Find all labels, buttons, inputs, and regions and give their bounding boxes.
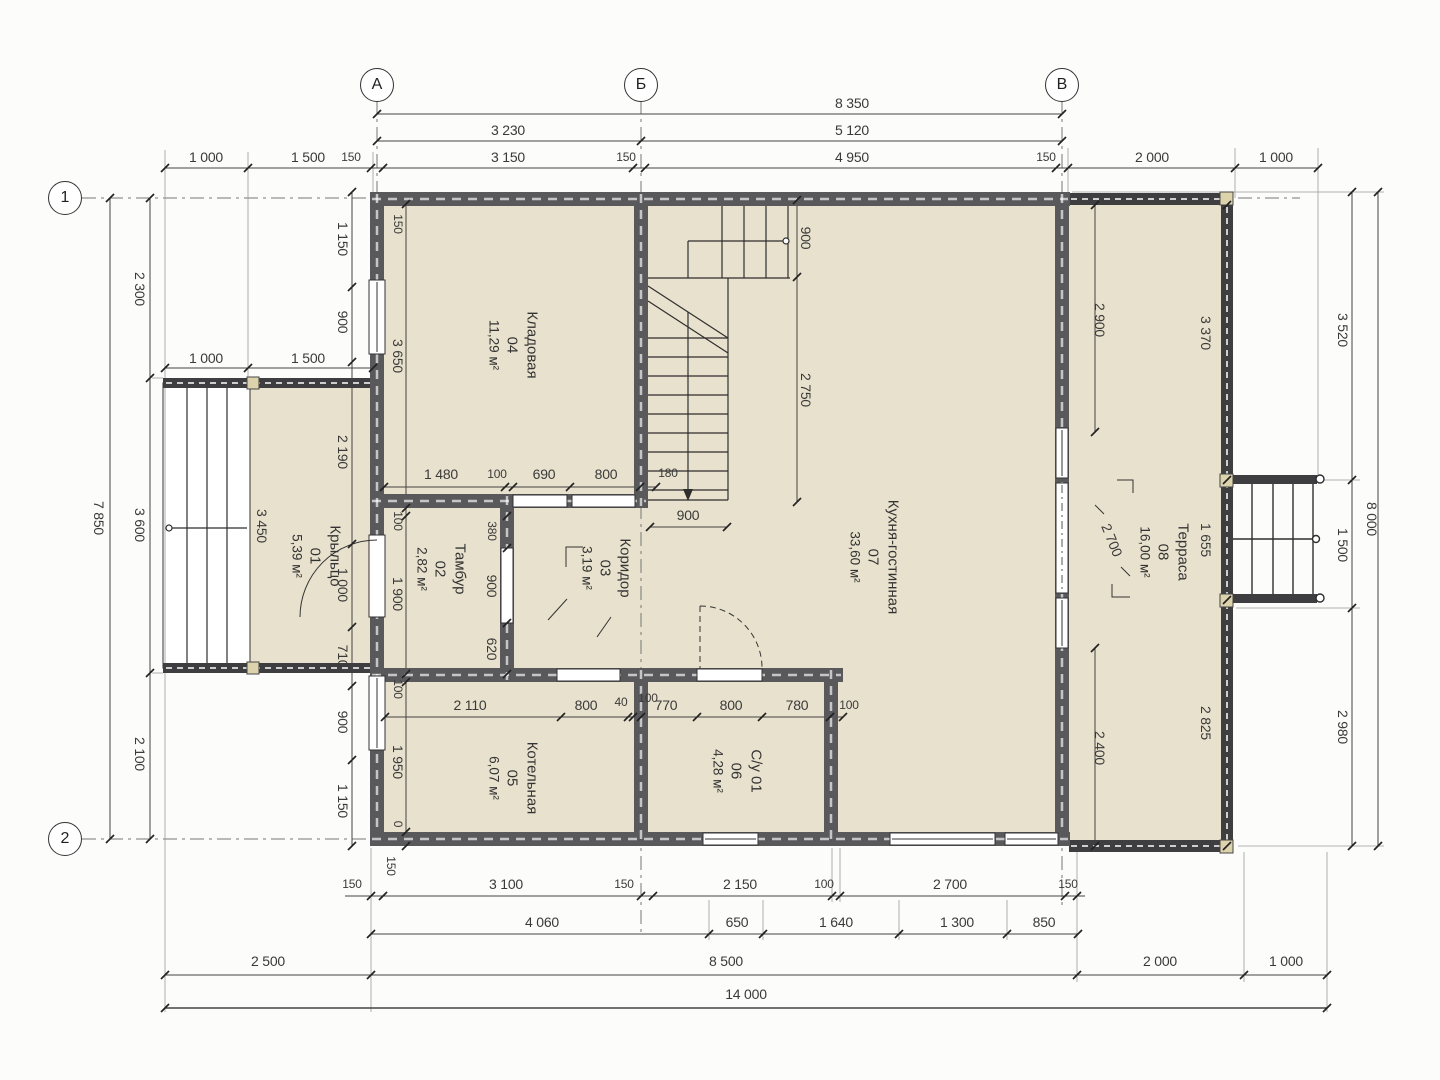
dim-label: 2 110 (454, 698, 487, 712)
dim-label: 1 500 (291, 150, 325, 164)
room-area: 2,82 м² (413, 544, 431, 595)
dim-label: 3 150 (491, 150, 525, 164)
dim-label: 2 750 (799, 373, 813, 407)
dim-label: 5 120 (835, 123, 869, 137)
dim-label: 100 (392, 679, 404, 698)
dim-label: 3 650 (391, 339, 405, 373)
room-name: Кладовая (522, 311, 542, 378)
room-area: 11,29 м² (485, 311, 503, 378)
room-label: Котельная056,07 м² (485, 742, 542, 815)
room-label: Коридор033,19 м² (578, 538, 635, 597)
dim-label: 780 (786, 698, 809, 712)
dim-label: 14 000 (725, 987, 767, 1001)
dim-label: 800 (575, 698, 598, 712)
room-area: 6,07 м² (485, 742, 503, 815)
room-name: Кухня-гостинная (883, 500, 903, 614)
dim-label: 150 (1058, 878, 1077, 890)
axis-bubble-Б: Б (624, 68, 658, 102)
dim-label: 2 100 (133, 737, 147, 771)
terrace-steps (1233, 475, 1324, 603)
dim-label: 4 060 (525, 915, 559, 929)
room-label: Кухня-гостинная0733,60 м² (846, 500, 903, 614)
dim-label: 40 (615, 696, 628, 708)
room-label: Кладовая0411,29 м² (485, 311, 542, 378)
dim-label: 2 825 (1199, 706, 1213, 740)
dim-label: 1 950 (391, 745, 405, 779)
dim-label: 2 400 (1093, 731, 1107, 765)
dim-label: 150 (614, 878, 633, 890)
dim-label: 650 (726, 915, 749, 929)
dim-label: 150 (1036, 151, 1055, 163)
room-name: Тамбур (450, 544, 470, 595)
room-area: 3,19 м² (578, 538, 596, 597)
dim-label: 1 500 (1336, 528, 1350, 562)
room-label: Терраса0816,00 м² (1136, 523, 1193, 581)
dim-label: 7 850 (92, 501, 106, 535)
dim-label: 2 300 (133, 272, 147, 306)
dim-label: 2 000 (1143, 954, 1177, 968)
dim-label: 1 000 (189, 150, 223, 164)
axis-bubble-В: В (1045, 68, 1079, 102)
room-area: 5,39 м² (288, 525, 306, 586)
dim-label: 900 (336, 311, 350, 334)
dim-label: 2 150 (723, 877, 757, 891)
dim-label: 3 230 (491, 123, 525, 137)
dim-label: 4 950 (835, 150, 869, 164)
dim-label: 850 (1033, 915, 1056, 929)
dim-label: 180 (658, 467, 677, 479)
room-name: Крыльцо (325, 525, 345, 586)
room-num: 03 (595, 538, 615, 597)
room-area: 33,60 м² (846, 500, 864, 614)
room-num: 04 (502, 311, 522, 378)
dim-label: 3 520 (1336, 313, 1350, 347)
dim-label: 770 (655, 698, 678, 712)
dim-label: 900 (336, 711, 350, 734)
room-name: Котельная (522, 742, 542, 815)
dim-label: 900 (677, 508, 700, 522)
dim-label: 3 450 (255, 509, 269, 543)
dim-label: 1 150 (336, 784, 350, 818)
dim-label: 620 (485, 638, 499, 661)
dim-label: 710 (336, 645, 350, 668)
floor-plan-canvas: АБВ128 3503 2305 1201 0001 5001503 15015… (0, 0, 1440, 1080)
dim-label: 2 000 (1135, 150, 1169, 164)
room-area: 16,00 м² (1136, 523, 1154, 581)
dim-label: 100 (392, 511, 404, 530)
dim-label: 1 000 (1269, 954, 1303, 968)
room-name: Терраса (1173, 523, 1193, 581)
room-num: 08 (1153, 523, 1173, 581)
dim-label: 3 600 (133, 508, 147, 542)
axis-bubble-1: 1 (48, 181, 82, 215)
dim-label: 3 370 (1199, 316, 1213, 350)
room-num: 07 (863, 500, 883, 614)
dim-label: 1 640 (819, 915, 853, 929)
room-label: Тамбур022,82 м² (413, 544, 470, 595)
dim-label: 3 100 (489, 877, 523, 891)
dim-label: 150 (392, 214, 404, 233)
dim-label: 100 (839, 699, 858, 711)
room-name: С/у 01 (746, 749, 766, 793)
dim-label: 1 655 (1199, 523, 1213, 557)
dim-label: 900 (485, 575, 499, 598)
room-num: 05 (502, 742, 522, 815)
dim-label: 150 (616, 151, 635, 163)
dim-label: 150 (342, 878, 361, 890)
dim-label: 8 000 (1365, 502, 1379, 536)
dim-label: 1 300 (940, 915, 974, 929)
dim-label: 0 (392, 821, 404, 827)
dim-label: 8 350 (835, 96, 869, 110)
dim-label: 1 480 (424, 467, 458, 481)
dim-label: 2 980 (1336, 710, 1350, 744)
dim-label: 800 (595, 467, 618, 481)
dim-label: 150 (385, 856, 397, 875)
dim-label: 1 000 (189, 351, 223, 365)
room-name: Коридор (615, 538, 635, 597)
room-area: 4,28 м² (709, 749, 727, 793)
dim-label: 2 190 (336, 435, 350, 469)
room-num: 02 (430, 544, 450, 595)
dim-label: 100 (487, 468, 506, 480)
axis-bubble-2: 2 (48, 822, 82, 856)
dim-label: 1 900 (391, 577, 405, 611)
dim-label: 150 (341, 151, 360, 163)
dim-label: 100 (814, 878, 833, 890)
dim-label: 800 (720, 698, 743, 712)
room-num: 01 (305, 525, 325, 586)
room-label: С/у 01064,28 м² (709, 749, 766, 793)
dim-label: 8 500 (709, 954, 743, 968)
dim-label: 1 000 (1259, 150, 1293, 164)
dim-label: 900 (799, 227, 813, 250)
dim-label: 2 900 (1093, 303, 1107, 337)
dim-label: 2 700 (933, 877, 967, 891)
dim-label: 1 500 (291, 351, 325, 365)
dim-label: 2 500 (251, 954, 285, 968)
dim-label: 380 (486, 521, 498, 540)
room-num: 06 (726, 749, 746, 793)
dim-label: 690 (533, 467, 556, 481)
dim-label: 1 150 (336, 222, 350, 256)
axis-bubble-А: А (360, 68, 394, 102)
room-label: Крыльцо015,39 м² (288, 525, 345, 586)
